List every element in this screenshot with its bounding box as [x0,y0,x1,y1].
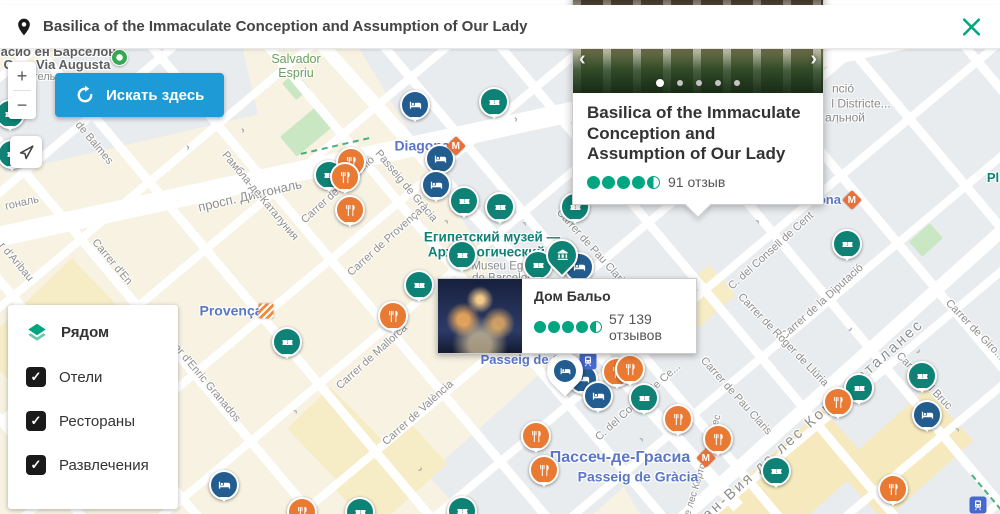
zoom-out-button[interactable]: − [8,91,36,119]
place-title[interactable]: Дом Бальо [534,288,684,304]
map-label-transit[interactable]: Provença [199,303,262,318]
rating-bubble [534,321,546,333]
marker-restaurant[interactable] [529,455,559,485]
marker-hotel[interactable] [400,90,430,120]
carousel-dot[interactable] [696,80,702,86]
marker-hotel[interactable] [912,400,942,430]
popup-title[interactable]: Basilica of the Immaculate Conception an… [587,103,809,165]
marker-attraction[interactable] [447,240,477,270]
rating-bubbles [587,176,660,189]
legend-item-restaurants: ✓Рестораны [26,411,160,431]
marker-hotel[interactable] [583,381,613,411]
marker-hotel[interactable] [209,470,239,500]
map-label-transit[interactable]: Пассеч-де-Грасиа [550,449,690,467]
marker-restaurant[interactable] [663,404,693,434]
marker-attraction[interactable] [832,229,862,259]
legend-item-label: Рестораны [59,413,135,430]
review-count[interactable]: 57 139 отзывов [609,311,684,343]
map-label-subtext: l Districte... [831,97,890,110]
carousel-dot[interactable] [734,80,740,86]
rating-bubble [576,321,588,333]
rating-bubble [590,321,602,333]
header-bar: Basilica of the Immaculate Conception an… [0,5,1000,49]
marker-restaurant[interactable] [521,421,551,451]
carousel-prev-icon[interactable]: ‹ [579,49,586,69]
marker-attraction[interactable] [761,456,791,486]
map-label-park: Espriu [278,67,313,81]
checkbox[interactable]: ✓ [26,411,46,431]
legend-item-label: Развлечения [59,457,149,474]
legend-header: Рядом [26,321,160,343]
legend-item-hotels: ✓Отели [26,367,160,387]
legend-title: Рядом [61,324,109,341]
poi-dot-icon[interactable] [111,49,128,66]
layers-icon [26,321,48,343]
map-label-park: Salvador [271,53,320,67]
my-location-button[interactable] [10,136,42,168]
marker-restaurant[interactable] [823,387,853,417]
marker-hotel[interactable] [421,170,451,200]
review-count[interactable]: 91 отзыв [668,174,725,190]
legend-item-label: Отели [59,369,102,386]
marker-attraction[interactable] [272,327,302,357]
rating-bubble [647,176,660,189]
marker-attraction[interactable] [449,186,479,216]
map-label-subtext: nció [832,82,854,95]
rating-bubble [632,176,645,189]
map-label-subtext: альной [825,111,865,124]
carousel-dots[interactable] [573,79,823,87]
checkbox[interactable]: ✓ [26,455,46,475]
map-label-transit[interactable]: Passeig de Gràcia [578,469,699,484]
carousel-dot[interactable] [715,80,721,86]
checkbox[interactable]: ✓ [26,367,46,387]
rating-bubble [602,176,615,189]
rail-station-icon[interactable] [259,304,274,319]
rating-bubble [587,176,600,189]
marker-attraction[interactable] [907,361,937,391]
rating-bubble [548,321,560,333]
search-here-button[interactable]: Искать здесь [55,73,224,117]
marker-restaurant[interactable] [335,195,365,225]
zoom-in-button[interactable]: + [8,62,36,90]
marker-restaurant[interactable] [330,162,360,192]
marker-attraction[interactable] [485,192,515,222]
marker-attraction[interactable] [404,270,434,300]
map-view: ››››››››››››››››››››просп. Диагональпрос… [0,0,1000,514]
rating-bubble [562,321,574,333]
marker-restaurant[interactable] [615,354,645,384]
carousel-dot[interactable] [656,79,664,87]
map-label-subtext: тель [33,71,56,83]
rating-bubble [617,176,630,189]
place-pin-icon [14,17,34,37]
train-station-icon[interactable] [970,497,987,514]
popup-card-casa-batllo[interactable]: Дом Бальо 57 139 отзывов [437,278,697,354]
page-title: Basilica of the Immaculate Conception an… [43,18,528,35]
place-photo[interactable] [438,279,522,353]
carousel-dot[interactable] [677,80,683,86]
carousel-next-icon[interactable]: › [810,49,817,69]
legend-panel: Рядом ✓Отели✓Рестораны✓Развлечения [8,305,178,509]
rating-bubbles [534,321,602,333]
zoom-controls: + − [8,62,36,119]
search-here-label: Искать здесь [106,87,204,104]
navigation-arrow-icon [17,143,36,162]
marker-attraction[interactable] [479,87,509,117]
close-icon[interactable] [961,16,982,37]
refresh-icon [75,85,95,105]
map-label-poi[interactable]: Египетский музей — [424,231,560,246]
marker-restaurant[interactable] [378,301,408,331]
legend-item-attractions: ✓Развлечения [26,455,160,475]
map-label-poi[interactable]: Pl [987,171,999,185]
marker-restaurant[interactable] [878,474,908,504]
